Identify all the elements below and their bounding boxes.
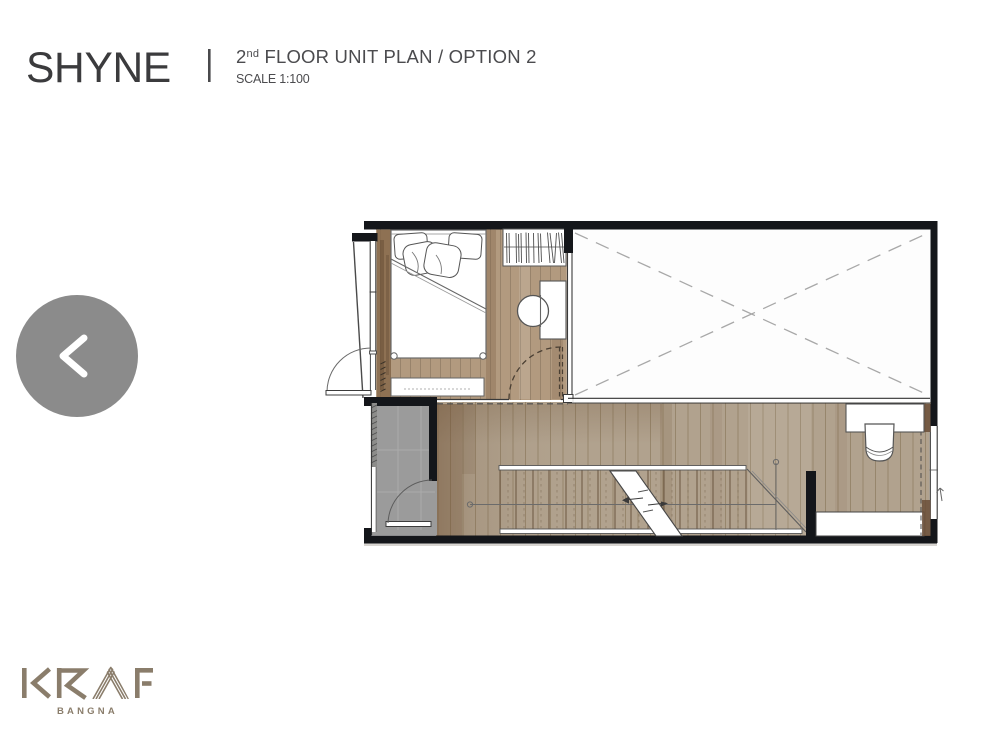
svg-text:2nd FLOOR UNIT PLAN / OPTION 2: 2nd FLOOR UNIT PLAN / OPTION 2 xyxy=(236,46,537,67)
svg-text:SHYNE: SHYNE xyxy=(26,45,171,92)
svg-text:BANGNA: BANGNA xyxy=(57,706,118,717)
svg-text:SCALE 1:100: SCALE 1:100 xyxy=(236,72,310,86)
